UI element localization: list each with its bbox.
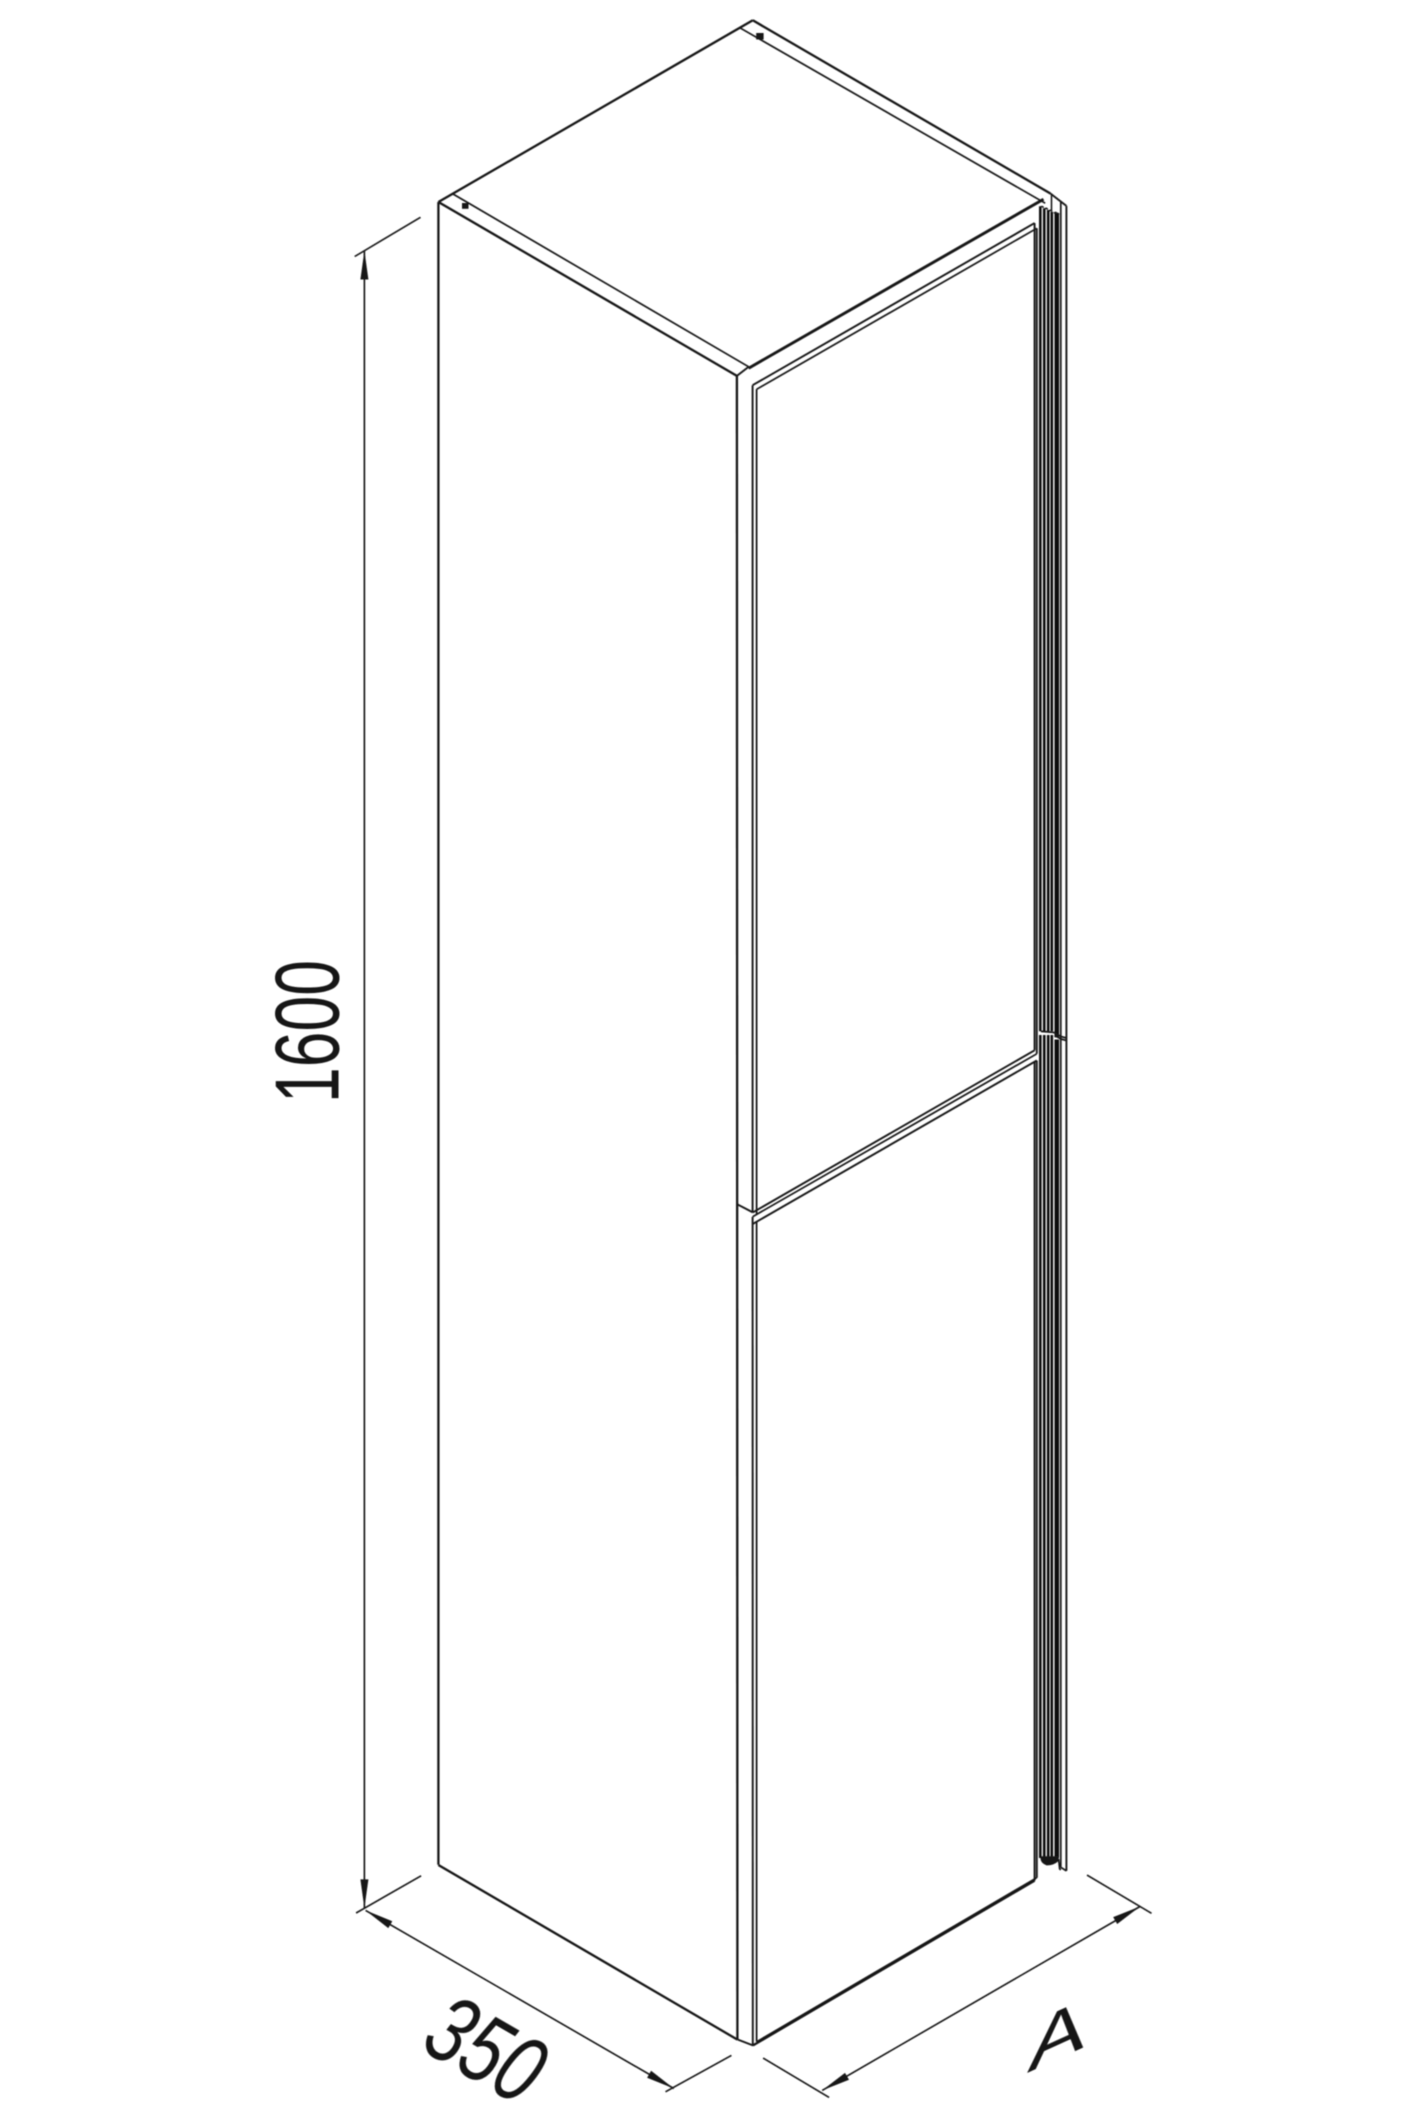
svg-text:1600: 1600 (258, 960, 359, 1103)
